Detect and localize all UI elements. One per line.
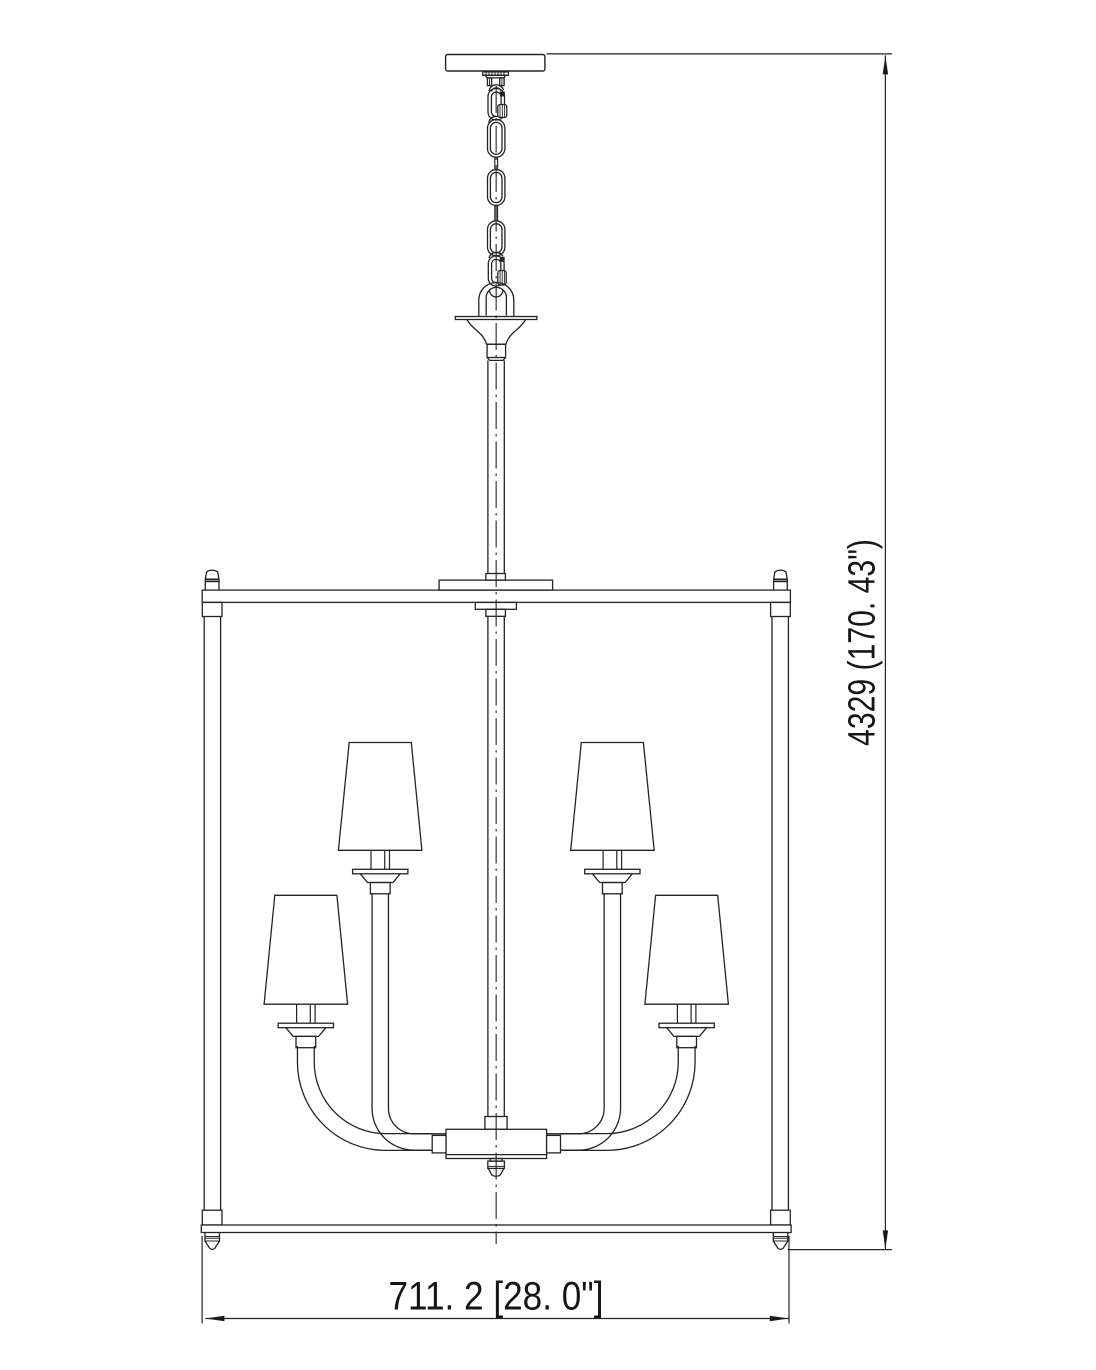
svg-text:711. 2 [28. 0"]: 711. 2 [28. 0"]: [388, 1273, 603, 1318]
svg-text:4329 (170. 43"): 4329 (170. 43"): [841, 539, 883, 746]
